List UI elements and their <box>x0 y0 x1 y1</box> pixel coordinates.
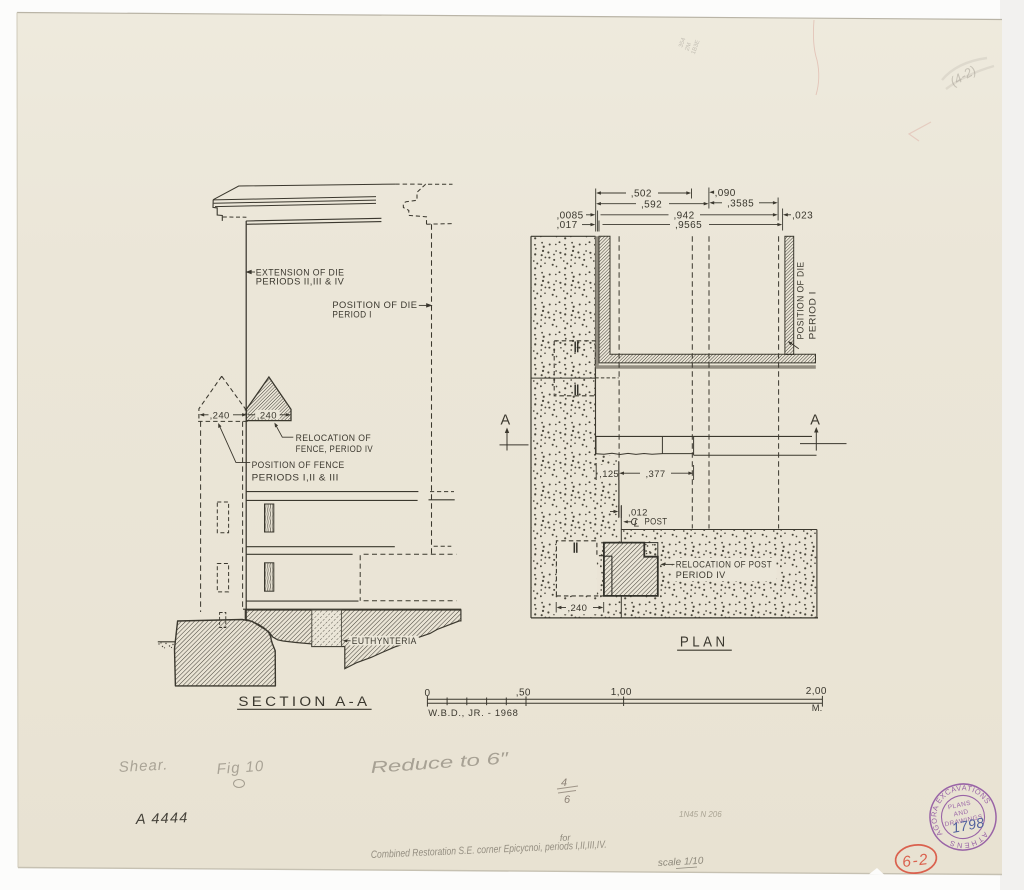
svg-text:,240: ,240 <box>257 410 277 421</box>
svg-text:1N45 N 206: 1N45 N 206 <box>679 810 722 819</box>
svg-text:for: for <box>560 832 572 843</box>
svg-text:6-2: 6-2 <box>901 851 930 871</box>
svg-text:PLAN: PLAN <box>680 634 729 651</box>
svg-text:POSITION OF FENCE: POSITION OF FENCE <box>252 460 345 470</box>
svg-text:4: 4 <box>561 777 567 789</box>
svg-text:RELOCATION OF: RELOCATION OF <box>296 433 372 443</box>
svg-text:W.B.D., JR. - 1968: W.B.D., JR. - 1968 <box>428 707 518 718</box>
svg-text:PERIOD I: PERIOD I <box>332 309 372 319</box>
svg-text:,240: ,240 <box>210 410 230 421</box>
svg-text:,9565: ,9565 <box>675 220 702 231</box>
svg-text:POSITION OF DIE: POSITION OF DIE <box>796 262 806 340</box>
svg-text:,240: ,240 <box>568 603 588 614</box>
svg-text:2,00: 2,00 <box>806 686 827 697</box>
svg-text:0: 0 <box>425 688 431 699</box>
svg-text:,592: ,592 <box>641 199 662 210</box>
svg-text:,377: ,377 <box>646 469 666 480</box>
svg-text:,017: ,017 <box>557 220 578 231</box>
svg-text:PERIODS I,II & III: PERIODS I,II & III <box>252 473 339 483</box>
svg-text:FENCE, PERIOD IV: FENCE, PERIOD IV <box>296 444 374 454</box>
svg-text:Fig 10: Fig 10 <box>216 758 265 778</box>
svg-text:PERIOD IV: PERIOD IV <box>676 570 726 580</box>
svg-text:,125: ,125 <box>599 469 619 480</box>
svg-text:,50: ,50 <box>516 688 531 699</box>
svg-text:L: L <box>634 517 640 529</box>
svg-text:PERIODS II,III & IV: PERIODS II,III & IV <box>256 277 345 287</box>
svg-text:1,00: 1,00 <box>611 687 632 698</box>
svg-text:PERIOD I: PERIOD I <box>808 291 818 340</box>
svg-text:RELOCATION OF POST: RELOCATION OF POST <box>676 560 772 570</box>
svg-text:A: A <box>810 413 820 429</box>
svg-text:SECTION A-A: SECTION A-A <box>238 694 370 710</box>
svg-text:,502: ,502 <box>631 189 652 200</box>
svg-text:M.: M. <box>812 702 822 713</box>
svg-text:,023: ,023 <box>792 210 813 221</box>
svg-text:EUTHYNTERIA: EUTHYNTERIA <box>352 636 417 646</box>
svg-text:6: 6 <box>564 794 571 806</box>
svg-text:POST: POST <box>645 517 668 527</box>
svg-text:,3585: ,3585 <box>727 198 754 209</box>
svg-text:A: A <box>501 413 511 429</box>
svg-text:A 4444: A 4444 <box>135 810 189 828</box>
svg-text:Shear.: Shear. <box>118 756 168 776</box>
